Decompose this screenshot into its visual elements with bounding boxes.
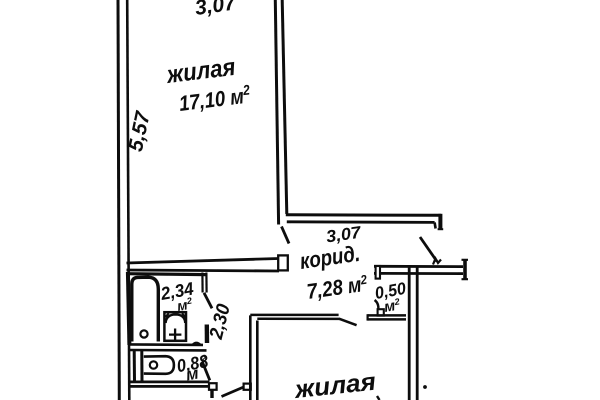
svg-text:м2: м2 bbox=[176, 296, 194, 314]
svg-text:17,10 м2: 17,10 м2 bbox=[177, 81, 252, 116]
svg-text:7,28 м2: 7,28 м2 bbox=[305, 272, 369, 304]
svg-text:корид.: корид. bbox=[298, 241, 361, 274]
svg-text:жилая: жилая bbox=[163, 53, 237, 89]
svg-text:2,30: 2,30 bbox=[204, 301, 234, 342]
svg-text:3,07: 3,07 bbox=[193, 0, 238, 20]
svg-text:жилая: жилая bbox=[292, 368, 377, 400]
svg-text:м2: м2 bbox=[383, 296, 402, 316]
